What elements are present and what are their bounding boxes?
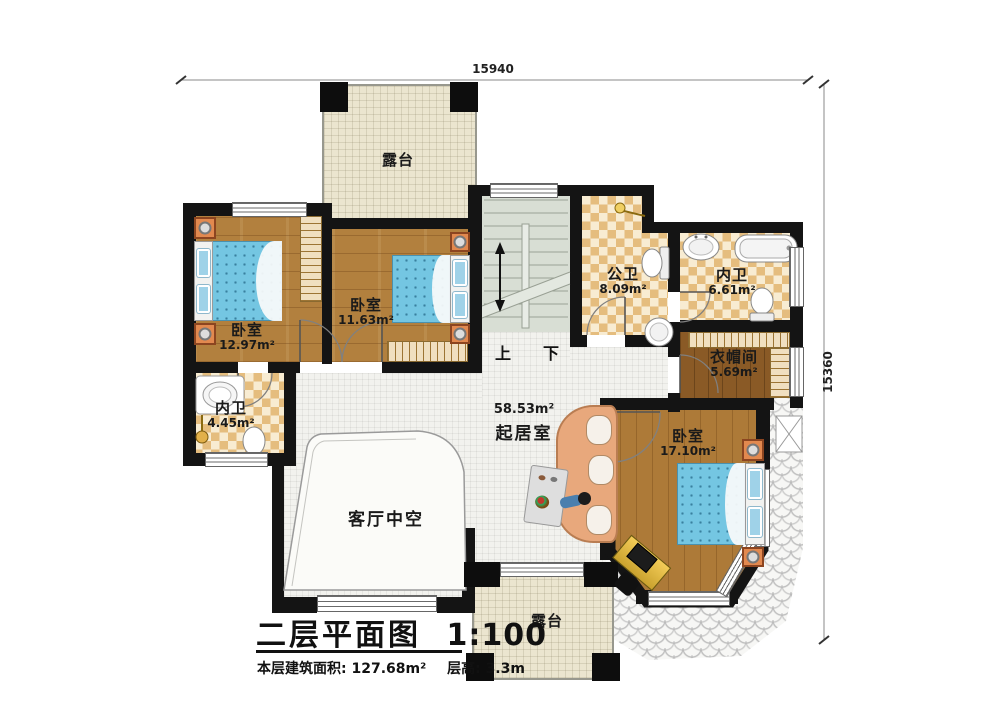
room-label-small-bath: 内卫 4.45m² [207, 400, 254, 431]
nightstand [450, 324, 470, 344]
room-label-bedroom3: 卧室 17.10m² [660, 428, 716, 459]
room-label-public-bath: 公卫 8.09m² [599, 266, 646, 297]
window [232, 202, 307, 217]
stairs-up-label: 上 [495, 340, 511, 364]
window [500, 562, 584, 577]
floor-height-label: 层高: 3.3m [447, 661, 525, 677]
stairs-down-label: 下 [543, 340, 559, 364]
wall-segment [183, 362, 238, 373]
wall-segment [668, 347, 680, 357]
window [205, 452, 268, 467]
wall-segment [668, 322, 680, 347]
room-label-bedroom2: 卧室 11.63m² [338, 297, 394, 328]
nightstand [450, 232, 470, 252]
stairwell-floor [482, 196, 570, 332]
column [450, 82, 478, 112]
column [592, 653, 620, 681]
room-label-terrace-top: 露台 [382, 152, 414, 169]
bed [392, 255, 470, 323]
wall-segment [322, 214, 332, 364]
wall-segment [382, 362, 482, 373]
wall-segment [642, 222, 803, 233]
wall-segment [680, 320, 803, 332]
nightstand [194, 217, 216, 239]
bed [194, 241, 282, 321]
title-underline [256, 650, 462, 653]
nightstand [194, 323, 216, 345]
wall-segment [272, 463, 284, 613]
wall-segment [604, 398, 774, 410]
wall-segment [468, 185, 482, 373]
building-area-label: 本层建筑面积: 127.68m² [257, 661, 426, 677]
room-label-closet: 衣帽间 5.69m² [710, 349, 758, 380]
wardrobe [300, 216, 322, 302]
plan-title-text: 二层平面图 [256, 618, 421, 653]
floor-plan-canvas: 露台 卧室 12.97m² 卧室 11.63m² 公卫 8.09m² 内卫 6.… [0, 0, 1000, 706]
room-label-living: 58.53m² 起居室 [494, 403, 554, 444]
room-label-bedroom1: 卧室 12.97m² [219, 322, 275, 353]
window [789, 247, 804, 307]
plan-subtitle: 本层建筑面积: 127.68m² 层高: 3.3m [257, 658, 541, 678]
wall-segment [668, 233, 680, 292]
nightstand [742, 439, 764, 461]
plan-scale: 1:100 [446, 618, 547, 653]
window [490, 183, 558, 198]
wall-segment [332, 218, 482, 229]
dimension-top: 15940 [453, 62, 533, 76]
wall-segment [268, 362, 300, 373]
dimension-right: 15360 [821, 342, 835, 402]
wall-segment [570, 335, 587, 347]
person [558, 488, 594, 514]
window [789, 347, 804, 397]
column [320, 82, 348, 112]
wall-segment [570, 185, 582, 347]
nightstand [742, 547, 764, 567]
room-label-inner-bath: 内卫 6.61m² [708, 267, 755, 298]
closet-rack [688, 332, 790, 348]
column [464, 562, 500, 587]
plan-title: 二层平面图 1:100 [256, 610, 547, 654]
room-label-void: 客厅中空 [348, 511, 424, 531]
closet-rack [770, 348, 790, 398]
wall-segment [183, 453, 205, 466]
bed [677, 463, 765, 545]
wall-segment [284, 368, 296, 466]
wardrobe [387, 341, 468, 362]
window [648, 591, 730, 606]
